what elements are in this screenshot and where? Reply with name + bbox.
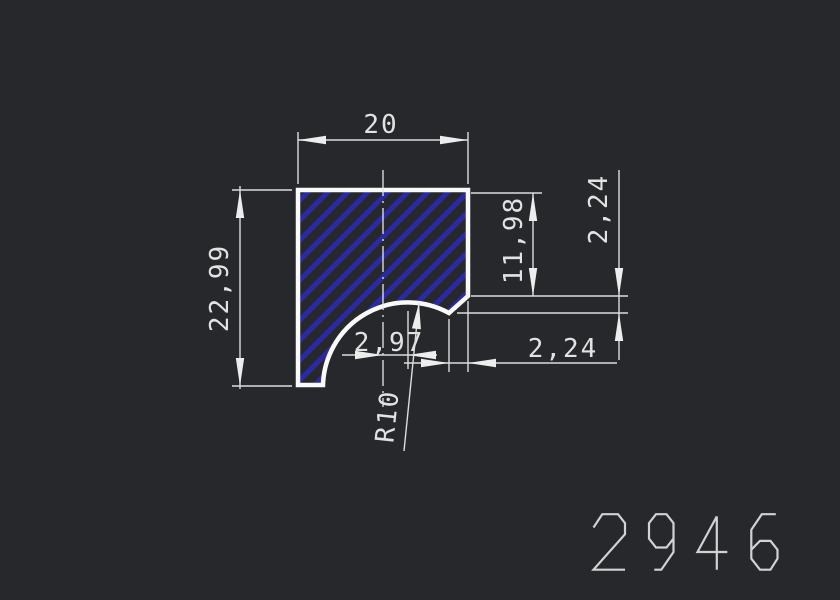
- arrowhead-top: [236, 190, 244, 218]
- dimension-radius[interactable]: R10: [370, 303, 421, 451]
- arrowhead-bottom: [529, 268, 537, 296]
- dimension-side-depth[interactable]: 11,98: [471, 193, 542, 296]
- cad-drawing: 20 22,99 11,98 2,24 2,97: [0, 0, 840, 600]
- dim-text-notch-width: 2,24: [528, 334, 599, 364]
- dim-text-notch-height: 2,24: [584, 174, 614, 245]
- arrowhead-left: [468, 359, 496, 367]
- arrowhead-left: [298, 136, 326, 144]
- arrowhead-top: [529, 193, 537, 221]
- dimension-height[interactable]: 22,99: [205, 186, 292, 389]
- dim-text-side-depth: 11,98: [499, 196, 529, 284]
- dimension-notch-width[interactable]: 2,24: [404, 301, 617, 372]
- cad-drawing-canvas[interactable]: 20 22,99 11,98 2,24 2,97: [0, 0, 840, 600]
- arrowhead-down: [615, 268, 623, 296]
- dim-text-width: 20: [363, 110, 398, 140]
- dim-text-radius: R10: [370, 388, 405, 444]
- arrowhead-up: [615, 313, 623, 341]
- dim-text-height: 22,99: [205, 244, 235, 332]
- plot-number[interactable]: 2946: [590, 514, 778, 585]
- arrowhead-radius: [412, 303, 421, 329]
- dimension-notch-height[interactable]: 2,24: [584, 170, 623, 360]
- glyph-6: [751, 514, 777, 570]
- arrowhead-bottom: [236, 358, 244, 386]
- arrowhead-right: [440, 136, 468, 144]
- arrowhead-right: [421, 359, 449, 367]
